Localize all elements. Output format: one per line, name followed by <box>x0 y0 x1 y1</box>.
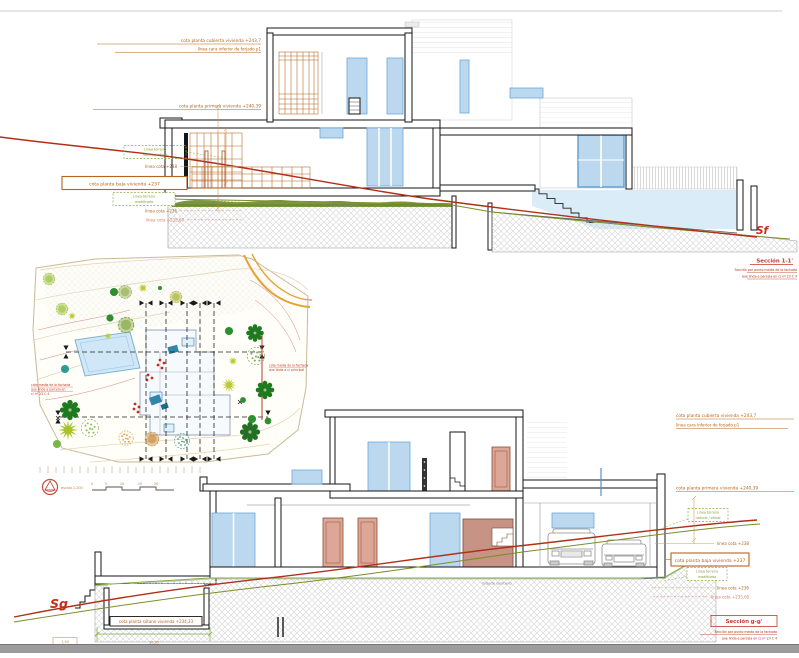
shelving-section <box>190 133 310 188</box>
section-marker-sf: Sf <box>756 225 770 237</box>
car <box>602 540 646 567</box>
site-plan-note-right: cota media de la fachada que linda a c/ … <box>269 364 308 373</box>
scale-bar: escala 1:200 0 5 10 15 20 <box>61 482 174 490</box>
plan-note-right-1: cota media de la fachada <box>269 364 308 368</box>
scale-tick-1: 5 <box>105 482 107 486</box>
window <box>510 88 543 98</box>
label-terreno-natural-top-1: Línea terreno <box>144 148 166 152</box>
scale-tick-3: 15 <box>138 482 142 486</box>
window <box>320 128 343 138</box>
section-marker-sg: Sg <box>50 596 68 611</box>
label-forjado-sanitario-bottom: forjado sanitario <box>482 582 511 586</box>
label-linea-238-top: línea cota +238 <box>145 164 177 169</box>
ground-hatch <box>168 205 455 248</box>
section-g-note-1: Sección por punto medio de la fachada <box>715 630 778 634</box>
label-cota-baja-bottom: cota planta baja vivienda +237 <box>675 558 746 564</box>
railing <box>630 167 737 189</box>
drawing-viewer: forjado sanitario Sf cota planta cubiert… <box>0 0 799 658</box>
horizontal-scrollbar[interactable] <box>0 644 799 653</box>
architectural-drawing-svg: forjado sanitario Sf cota planta cubiert… <box>0 0 799 658</box>
label-cota-cubierta-top: cota planta cubierta vivienda +243,7 <box>181 38 261 44</box>
north-arrow <box>43 480 58 495</box>
label-linea-238-bottom: línea cota +238 <box>717 541 749 546</box>
section-f-title: Sección 1-1' Sección por punto medio de … <box>735 258 798 280</box>
label-terreno-natural-bottom-2: natural / oficial <box>696 516 721 520</box>
label-linea-forjado-bottom: línea cara inferior de forjado p1 <box>676 423 740 428</box>
scale-tick-0: 0 <box>91 482 93 486</box>
window <box>460 60 469 113</box>
label-linea-forjado-top: línea cara inferior de forjado p1 <box>198 47 262 52</box>
label-cota-baja-top: cota planta baja vivienda +237 <box>89 181 160 187</box>
scale-tick-4: 20 <box>154 482 158 486</box>
label-cota-primera-top: cota planta primera vivienda +240,39 <box>179 104 261 110</box>
section-g-note-2: que linda a parcela en c/ nº 23 C 4 <box>722 637 777 641</box>
section-f-note-2: que linda a parcela en c/ nº 23 C 4 <box>742 275 797 279</box>
section-g-title-text: Sección g-g' <box>726 618 763 625</box>
window <box>387 58 403 114</box>
car <box>548 529 595 565</box>
label-cota-cubierta-bottom: cota planta cubierta vivienda +243,7 <box>676 413 756 419</box>
label-linea-23560-top: línea cota +235,60 <box>146 218 185 223</box>
label-linea-23560-bottom: línea cota +235,60 <box>711 595 750 600</box>
plan-note-right-2: que linda a c/ principal <box>269 368 304 372</box>
door <box>492 447 510 491</box>
section-g-annotations: cota planta cubierta vivienda +243,7 lín… <box>651 413 794 600</box>
window <box>430 513 460 567</box>
wardrobe-section <box>279 52 318 114</box>
section-f-note-1: Sección por punto medio de la fachada <box>735 268 798 272</box>
window <box>367 128 403 186</box>
section-f-drawing: forjado sanitario Sf cota planta cubiert… <box>0 20 797 279</box>
scale-label: escala 1:200 <box>61 486 83 490</box>
garage-window <box>552 513 594 528</box>
label-cota-primera-bottom: cota planta primera vivienda +240,39 <box>676 486 758 492</box>
label-terreno-natural-top-2: natural / oficial <box>143 153 168 157</box>
plan-note-left-1: cota media de la fachada <box>31 383 70 387</box>
label-terreno-mod-bottom-2: modificado <box>698 575 716 579</box>
label-forjado-sanitario-top: forjado sanitario <box>330 204 359 208</box>
plan-note-left-3: c/ nº 23 C 4 <box>31 392 49 396</box>
label-terreno-natural-bottom-1: Línea terreno <box>697 511 719 515</box>
label-linea-236-bottom: línea cota +236 <box>717 586 749 591</box>
scale-tick-2: 10 <box>120 482 124 486</box>
label-terreno-mod-top-1: Línea terreno <box>133 195 155 199</box>
site-plan: cota media de la fachada que linda a par… <box>31 254 312 495</box>
plan-note-left-2: que linda a parcela en <box>31 388 66 392</box>
label-terreno-mod-bottom-1: Línea terreno <box>696 570 718 574</box>
label-cota-sotano: cota planta sótano vivienda +234,33 <box>119 619 194 624</box>
label-terreno-mod-top-2: modificado <box>135 200 153 204</box>
label-linea-236-top: línea cota +236 <box>145 209 177 214</box>
section-f-title-text: Sección 1-1' <box>756 258 793 265</box>
skylight <box>292 470 322 484</box>
